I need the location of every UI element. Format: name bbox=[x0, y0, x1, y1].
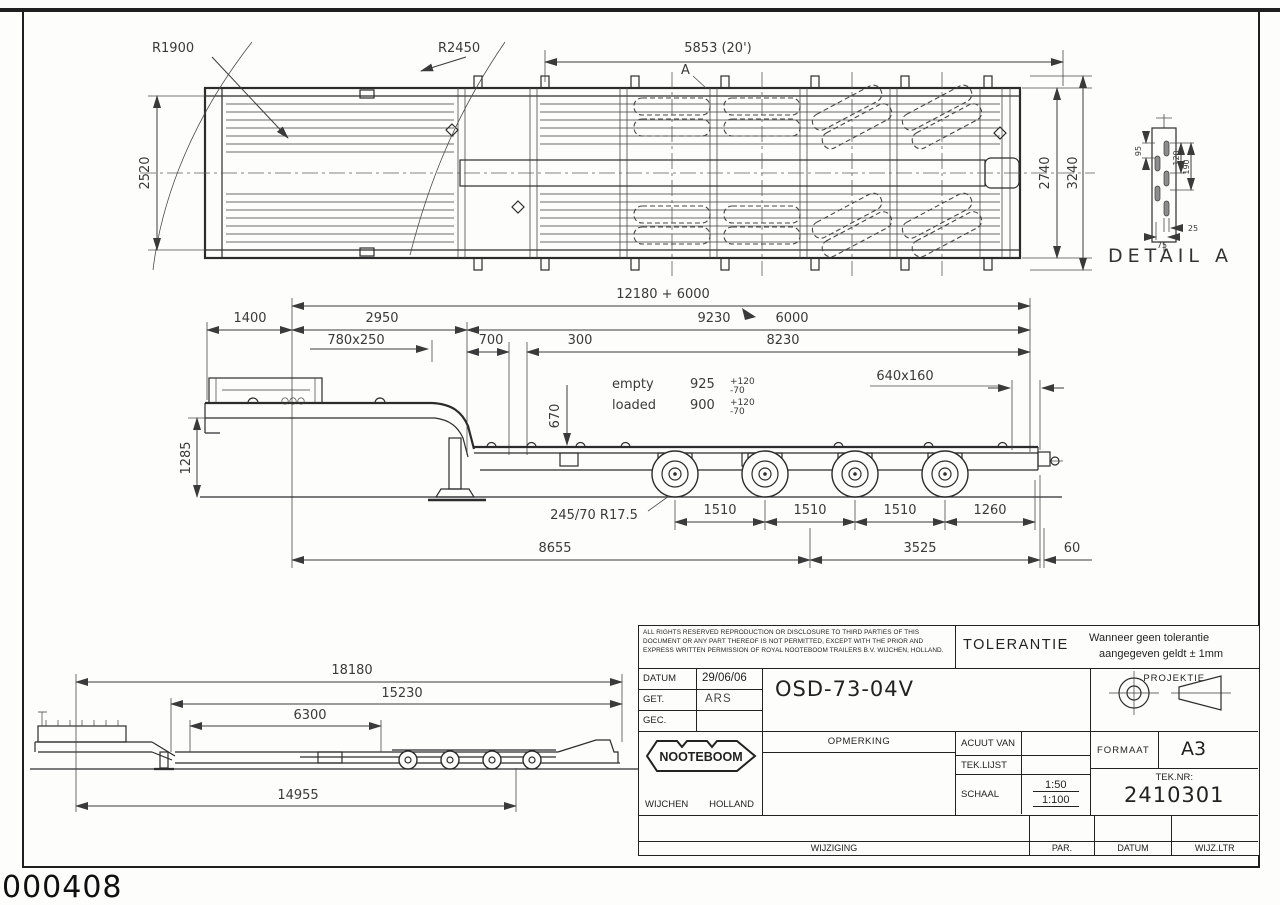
formaat-value: A3 bbox=[1159, 732, 1257, 769]
length-dimensions: 12180 + 6000 1400 2950 9230 6000 780x250… bbox=[207, 287, 1030, 568]
formaat-label: FORMAAT bbox=[1091, 732, 1159, 769]
teknr-value: 2410301 bbox=[1091, 783, 1258, 807]
dim-60: 60 bbox=[1064, 541, 1081, 556]
projection-cell: PROJEKTIE bbox=[1091, 669, 1258, 732]
legal-line-2: DOCUMENT OR ANY PART THEREOF IS NOT PERM… bbox=[643, 638, 951, 647]
revision-content-3 bbox=[1095, 816, 1172, 842]
acuut-van-label: ACUUT VAN bbox=[956, 732, 1022, 756]
legal-notice: ALL RIGHTS RESERVED REPRODUCTION OR DISC… bbox=[639, 626, 956, 669]
detail-dim-120: 120 bbox=[1172, 150, 1181, 165]
dim-2950: 2950 bbox=[365, 311, 398, 326]
dim-8655: 8655 bbox=[538, 541, 571, 556]
schaal-value-1: 1:50 bbox=[1033, 779, 1079, 792]
detail-a-title: DETAIL A bbox=[1108, 245, 1233, 267]
teklijst-value bbox=[1022, 756, 1090, 775]
detail-a-callout: A bbox=[681, 63, 690, 78]
dim-300: 300 bbox=[568, 333, 593, 348]
empty-tol-minus: -70 bbox=[730, 386, 745, 396]
approval-table: DATUM 29/06/06 GET. ARS GEC. bbox=[639, 669, 763, 732]
revision-content-1 bbox=[639, 816, 1030, 842]
dim-15230: 15230 bbox=[381, 686, 422, 701]
acuut-van-value bbox=[1022, 732, 1090, 756]
detail-a: 95 120 190 25 75 DETAIL A bbox=[1108, 114, 1233, 267]
dim-6000: 6000 bbox=[775, 311, 808, 326]
dim-3525: 3525 bbox=[903, 541, 936, 556]
wijziging-label: WIJZIGING bbox=[639, 842, 1030, 855]
format-row: FORMAAT A3 bbox=[1091, 732, 1258, 769]
dim-2520: 2520 bbox=[138, 156, 153, 189]
dim-axle3: 1510 bbox=[883, 503, 916, 518]
tolerance-text-2: aangegeven geldt ± 1mm bbox=[1099, 648, 1223, 660]
rear-bumper bbox=[1038, 452, 1050, 466]
revision-content-2 bbox=[1030, 816, 1095, 842]
tyre-size-label: 245/70 R17.5 bbox=[550, 508, 638, 523]
legal-line-3: EXPRESS WRITTEN PERMISSION OF ROYAL NOOT… bbox=[643, 647, 951, 656]
empty-label: empty bbox=[612, 377, 654, 392]
datum-label: DATUM bbox=[639, 669, 697, 690]
schaal-values: 1:50 1:100 bbox=[1022, 775, 1090, 814]
revision-content-4 bbox=[1172, 816, 1258, 842]
legal-line-1: ALL RIGHTS RESERVED REPRODUCTION OR DISC… bbox=[643, 629, 951, 638]
dim-axle1: 1510 bbox=[703, 503, 736, 518]
tolerance-label: TOLERANTIE bbox=[963, 637, 1069, 653]
dim-axle4: 1260 bbox=[973, 503, 1006, 518]
radius-arc-r1900 bbox=[153, 42, 252, 270]
dim-18180: 18180 bbox=[331, 663, 372, 678]
datum-value: 29/06/06 bbox=[697, 669, 762, 690]
dim-6300: 6300 bbox=[293, 708, 326, 723]
wheels-side bbox=[652, 451, 968, 497]
company-cell: NOOTEBOOM WIJCHEN HOLLAND bbox=[639, 732, 763, 816]
empty-value: 925 bbox=[690, 377, 715, 392]
detail-dim-95: 95 bbox=[1134, 146, 1143, 156]
loaded-tol-minus: -70 bbox=[730, 407, 745, 417]
wijzltr-label: WIJZ.LTR bbox=[1172, 842, 1258, 855]
dim-5853: 5853 (20') bbox=[684, 41, 751, 56]
detail-dim-25: 25 bbox=[1188, 224, 1198, 233]
dim-14955: 14955 bbox=[277, 788, 318, 803]
gecontroleerd-label: GEC. bbox=[639, 711, 697, 732]
tolerance-cell: TOLERANTIE Wanneer geen tolerantie aange… bbox=[956, 626, 1260, 669]
par-label: PAR. bbox=[1030, 842, 1095, 855]
company-country: HOLLAND bbox=[709, 799, 754, 810]
tolerance-text-1: Wanneer geen tolerantie bbox=[1089, 632, 1209, 644]
dim-2740: 2740 bbox=[1038, 156, 1053, 189]
dim-8230: 8230 bbox=[766, 333, 799, 348]
side-view: 1285 670 empty 925 +120 -70 loaded 900 +… bbox=[179, 369, 1092, 568]
dim-axle2: 1510 bbox=[793, 503, 826, 518]
first-angle-projection-icon bbox=[1091, 669, 1257, 715]
company-city: WIJCHEN bbox=[645, 799, 688, 810]
datum-col-label: DATUM bbox=[1095, 842, 1172, 855]
detail-dim-190: 190 bbox=[1182, 159, 1191, 174]
plan-view: R1900 R2450 5853 (20') A 2740 3240 2520 bbox=[138, 41, 1095, 276]
drawing-number: OSD-73-04V bbox=[763, 669, 1091, 732]
radius-label-r1900: R1900 bbox=[152, 41, 194, 56]
dim-780x250: 780x250 bbox=[327, 333, 384, 348]
radius-arc-r2450 bbox=[410, 42, 505, 255]
detail-a-slots bbox=[1155, 141, 1169, 216]
blueprint-page: R1900 R2450 5853 (20') A 2740 3240 2520 … bbox=[0, 0, 1280, 905]
dim-12180-6000: 12180 + 6000 bbox=[616, 287, 710, 302]
nooteboom-logo: NOOTEBOOM bbox=[639, 732, 763, 780]
schaal-value-2: 1:100 bbox=[1033, 794, 1079, 807]
ride-height-note: empty 925 +120 -70 loaded 900 +120 -70 bbox=[612, 377, 755, 417]
scale-table: ACUUT VAN TEK.LIJST SCHAAL 1:50 1:100 bbox=[956, 732, 1091, 816]
remark-divider bbox=[763, 752, 955, 753]
gecontroleerd-value bbox=[697, 711, 762, 732]
getekend-label: GET. bbox=[639, 690, 697, 711]
teknr-label: TEK.NR: bbox=[1091, 769, 1258, 783]
teklijst-label: TEK.LIJST bbox=[956, 756, 1022, 775]
dim-1400: 1400 bbox=[233, 311, 266, 326]
getekend-value: ARS bbox=[697, 690, 762, 711]
dim-640x160: 640x160 bbox=[876, 369, 933, 384]
remark-label: OPMERKING bbox=[763, 732, 955, 747]
title-block: ALL RIGHTS RESERVED REPRODUCTION OR DISC… bbox=[638, 625, 1260, 856]
loaded-value: 900 bbox=[690, 398, 715, 413]
extended-view: 18180 15230 6300 14955 bbox=[30, 663, 640, 812]
dim-3240: 3240 bbox=[1066, 156, 1081, 189]
extension-arrow-icon bbox=[742, 308, 756, 320]
schaal-label: SCHAAL bbox=[956, 775, 1022, 814]
page-code: 000408 bbox=[2, 870, 123, 905]
dim-1285: 1285 bbox=[179, 441, 194, 474]
loaded-label: loaded bbox=[612, 398, 656, 413]
wheels-extended bbox=[399, 751, 541, 769]
dim-700: 700 bbox=[479, 333, 504, 348]
brand-name: NOOTEBOOM bbox=[659, 750, 742, 764]
radius-label-r2450: R2450 bbox=[438, 41, 480, 56]
dim-670: 670 bbox=[548, 404, 563, 429]
remark-cell: OPMERKING bbox=[763, 732, 956, 816]
drawing-nr-cell: TEK.NR: 2410301 bbox=[1091, 769, 1258, 816]
dim-9230: 9230 bbox=[697, 311, 730, 326]
